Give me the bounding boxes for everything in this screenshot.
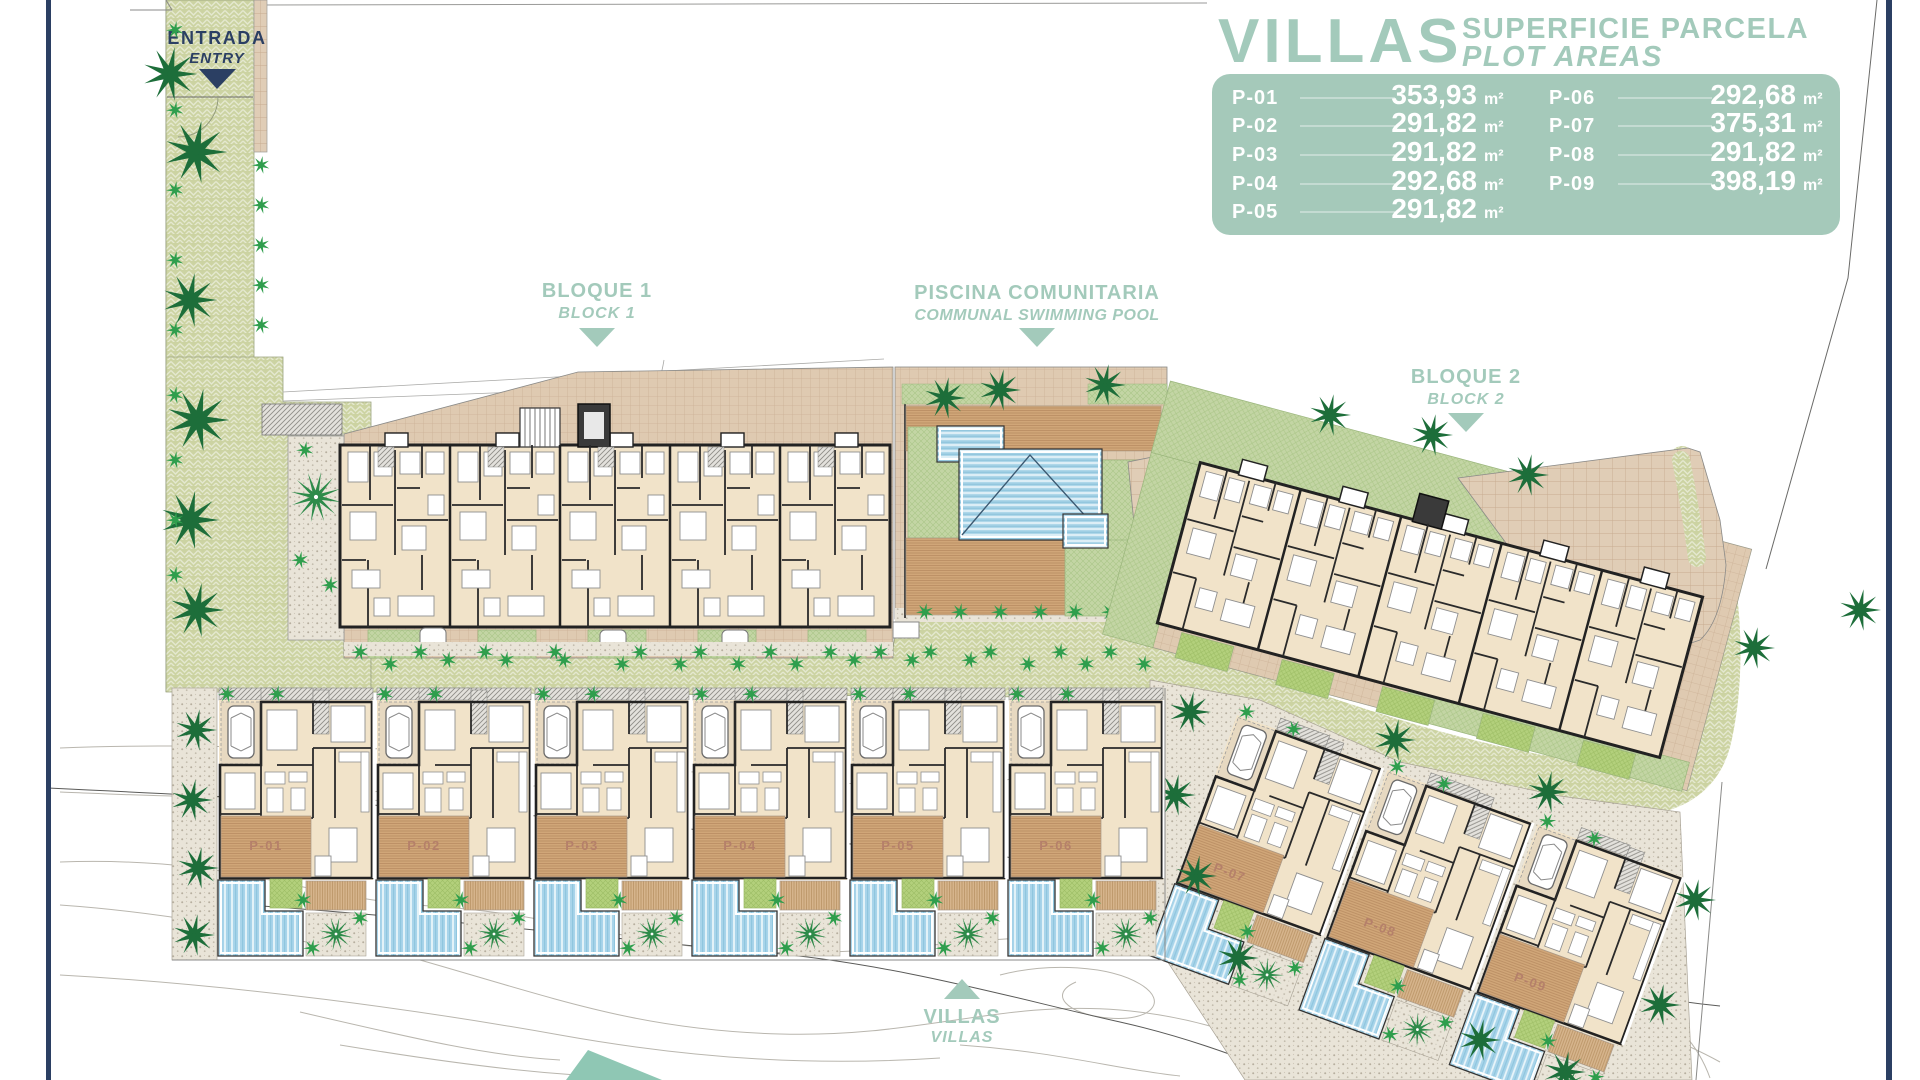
svg-text:292,68: 292,68 (1391, 165, 1477, 196)
svg-text:291,82: 291,82 (1391, 136, 1477, 167)
svg-text:292,68: 292,68 (1710, 79, 1796, 110)
svg-text:P-02: P-02 (407, 838, 440, 853)
svg-text:P-03: P-03 (1232, 144, 1278, 166)
svg-text:PISCINA COMUNITARIA: PISCINA COMUNITARIA (914, 282, 1160, 304)
svg-text:m²: m² (1803, 148, 1823, 165)
svg-text:VILLAS: VILLAS (923, 1006, 1000, 1028)
svg-text:VILLAS: VILLAS (931, 1029, 994, 1046)
svg-text:PLOT AREAS: PLOT AREAS (1462, 41, 1663, 73)
svg-text:VILLAS: VILLAS (1218, 7, 1462, 76)
svg-text:m²: m² (1803, 119, 1823, 136)
svg-text:291,82: 291,82 (1391, 193, 1477, 224)
svg-text:375,31: 375,31 (1710, 107, 1796, 138)
svg-text:P-01: P-01 (249, 838, 282, 853)
svg-text:m²: m² (1803, 91, 1823, 108)
svg-text:m²: m² (1484, 91, 1504, 108)
svg-text:P-06: P-06 (1039, 838, 1072, 853)
svg-text:P-01: P-01 (1232, 87, 1278, 109)
svg-text:P-04: P-04 (1232, 173, 1278, 195)
svg-text:BLOQUE 2: BLOQUE 2 (1411, 366, 1521, 388)
svg-text:BLOCK 2: BLOCK 2 (1427, 391, 1504, 408)
svg-text:P-04: P-04 (723, 838, 756, 853)
svg-text:COMMUNAL SWIMMING POOL: COMMUNAL SWIMMING POOL (914, 307, 1159, 324)
svg-text:P-03: P-03 (565, 838, 598, 853)
svg-text:m²: m² (1484, 119, 1504, 136)
svg-text:m²: m² (1803, 177, 1823, 194)
svg-text:BLOQUE 1: BLOQUE 1 (542, 280, 652, 302)
svg-text:398,19: 398,19 (1710, 165, 1796, 196)
svg-text:P-08: P-08 (1549, 144, 1595, 166)
svg-text:ENTRADA: ENTRADA (167, 28, 266, 48)
svg-text:m²: m² (1484, 205, 1504, 222)
svg-text:BLOCK 1: BLOCK 1 (558, 305, 635, 322)
svg-text:P-05: P-05 (1232, 201, 1278, 223)
svg-text:ENTRY: ENTRY (189, 50, 246, 67)
svg-text:P-02: P-02 (1232, 115, 1278, 137)
svg-text:P-07: P-07 (1549, 115, 1595, 137)
svg-text:m²: m² (1484, 177, 1504, 194)
svg-text:291,82: 291,82 (1391, 107, 1477, 138)
svg-text:P-05: P-05 (881, 838, 914, 853)
svg-text:291,82: 291,82 (1710, 136, 1796, 167)
svg-text:m²: m² (1484, 148, 1504, 165)
svg-text:353,93: 353,93 (1391, 79, 1477, 110)
svg-text:P-06: P-06 (1549, 87, 1595, 109)
svg-text:P-09: P-09 (1549, 173, 1595, 195)
